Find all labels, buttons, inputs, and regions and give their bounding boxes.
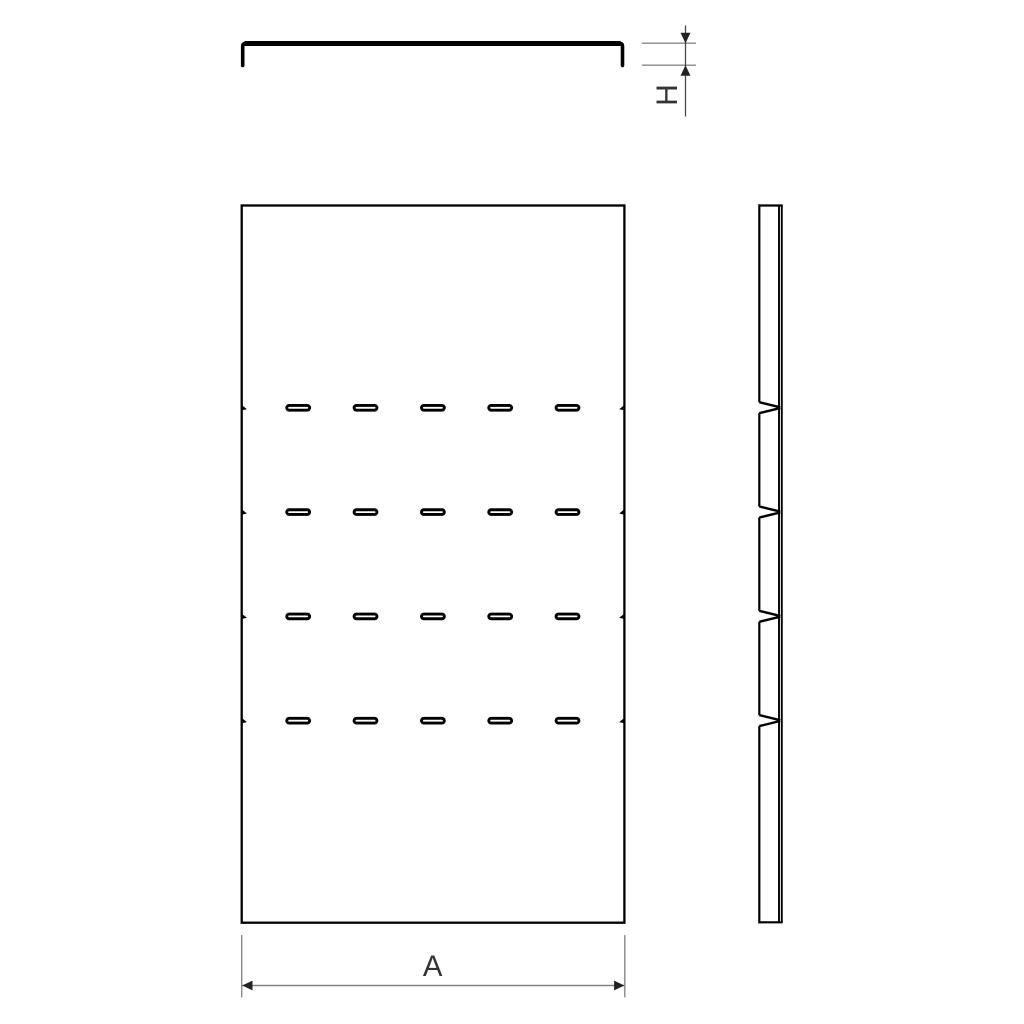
svg-text:H: H	[651, 84, 684, 106]
svg-text:A: A	[423, 950, 443, 983]
